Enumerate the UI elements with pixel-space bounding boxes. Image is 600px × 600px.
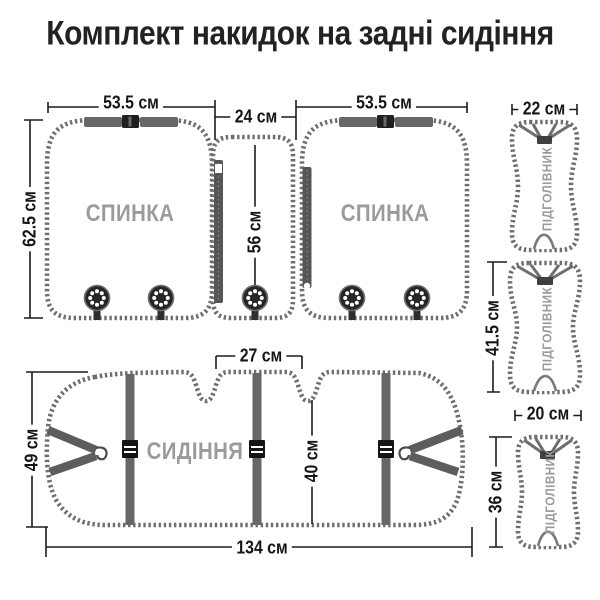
headrest-middle-label: ПІДГОЛІВНИК (540, 287, 555, 371)
seat-label: СИДІННЯ (147, 438, 244, 466)
backrest-left-strap (84, 115, 178, 128)
buckle (537, 136, 552, 144)
dim-width-headrest-bottom: 20 см (522, 404, 573, 425)
zipper-center-left (214, 160, 223, 303)
dim-height-seat: 49 см (22, 424, 43, 475)
headrest-top-label: ПІДГОЛІВНИК (540, 147, 555, 231)
backrest-left-label: СПИНКА (86, 200, 175, 228)
dim-center-top-seat: 27 см (235, 346, 286, 367)
zipper-pull (304, 283, 310, 289)
backrest-right-strap (339, 115, 433, 128)
zipper-slider (215, 164, 222, 173)
dim-height-headrest-middle: 41.5 см (483, 296, 504, 361)
diagram-canvas (0, 0, 600, 600)
zipper-backrest-right (303, 167, 312, 289)
dim-width-seat: 134 см (232, 538, 292, 559)
headrest-bottom-label: ПІДГОЛІВНИК (543, 450, 558, 534)
dim-height-center: 56 см (245, 206, 266, 257)
seat-cover-infographic: Комплект накидок на задні сидіння 53.5 с… (0, 0, 600, 600)
dim-width-backrest-right: 53.5 см (352, 93, 417, 114)
page-title: Комплект накидок на задні сидіння (46, 15, 553, 54)
backrest-right-label: СПИНКА (341, 200, 430, 228)
dim-height-headrest-bottom: 36 см (486, 466, 507, 517)
buckle (537, 277, 553, 285)
dim-width-headrest-top: 22 см (518, 99, 569, 120)
dim-width-backrest-left: 53.5 см (99, 93, 164, 114)
dim-height-backrest: 62.5 см (20, 187, 41, 252)
dim-inner-height-seat: 40 см (302, 435, 323, 486)
dim-width-center: 24 см (230, 107, 281, 128)
